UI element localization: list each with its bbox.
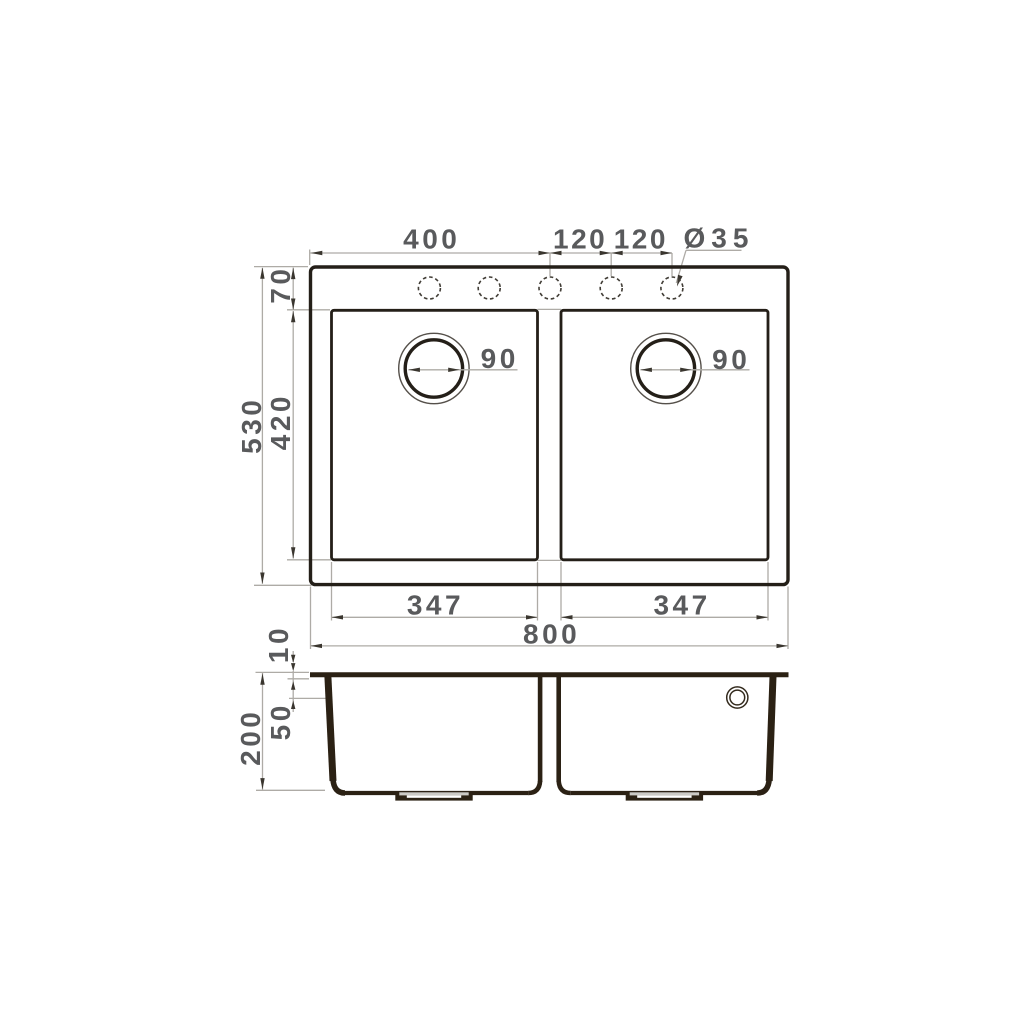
svg-text:50: 50 <box>265 702 296 740</box>
svg-text:Ø35: Ø35 <box>684 223 755 254</box>
svg-text:200: 200 <box>235 709 266 766</box>
svg-text:400: 400 <box>403 224 460 255</box>
svg-text:800: 800 <box>523 619 580 650</box>
svg-text:90: 90 <box>712 344 750 375</box>
svg-text:347: 347 <box>653 590 710 621</box>
svg-text:10: 10 <box>263 625 294 663</box>
svg-text:120: 120 <box>614 224 668 255</box>
svg-text:420: 420 <box>265 393 296 450</box>
svg-text:347: 347 <box>407 590 464 621</box>
svg-text:70: 70 <box>265 266 296 304</box>
svg-text:90: 90 <box>481 343 519 374</box>
svg-text:530: 530 <box>236 397 267 454</box>
svg-text:120: 120 <box>553 224 607 255</box>
